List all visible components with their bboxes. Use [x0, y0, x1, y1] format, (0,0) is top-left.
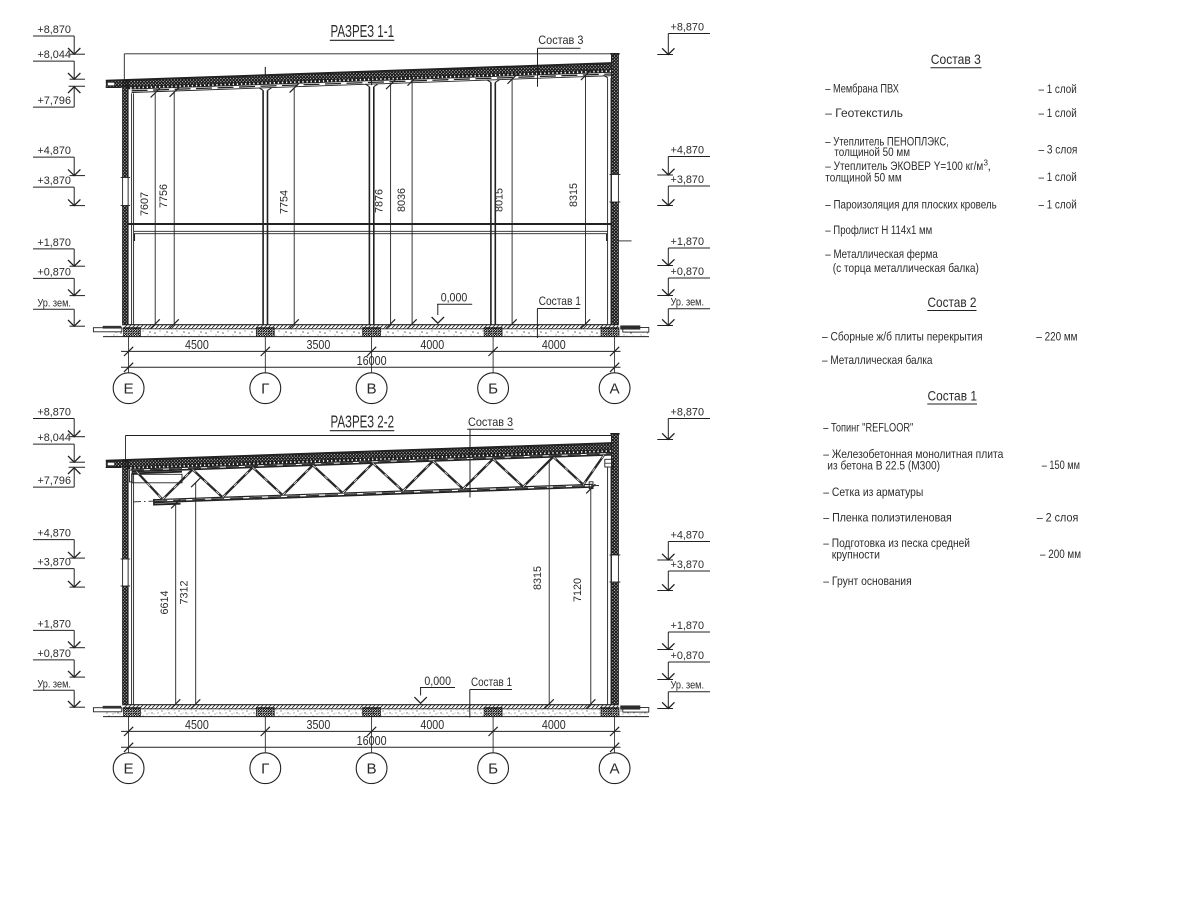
svg-text:7312: 7312 — [179, 581, 191, 605]
svg-text:+4,870: +4,870 — [37, 528, 71, 540]
svg-text:+8,044: +8,044 — [37, 49, 71, 61]
svg-text:Состав 3: Состав 3 — [538, 33, 583, 47]
svg-text:– Сетка из арматуры: – Сетка из арматуры — [823, 485, 923, 499]
svg-text:(с торца металлическая балка): (с торца металлическая балка) — [833, 261, 979, 275]
svg-text:Е: Е — [124, 381, 134, 398]
svg-text:Ур. зем.: Ур. зем. — [37, 678, 71, 690]
svg-text:Состав 1: Состав 1 — [928, 388, 978, 404]
svg-text:– 1 слой: – 1 слой — [1039, 82, 1077, 96]
svg-text:+0,870: +0,870 — [37, 266, 71, 278]
svg-text:Г: Г — [261, 381, 269, 398]
svg-text:А: А — [610, 761, 621, 778]
svg-text:7120: 7120 — [572, 578, 584, 602]
svg-text:Состав 2: Состав 2 — [928, 294, 977, 310]
svg-text:– 220 мм: – 220 мм — [1036, 330, 1077, 344]
svg-text:4500: 4500 — [185, 717, 209, 732]
svg-text:– 1 слой: – 1 слой — [1039, 198, 1077, 212]
svg-text:В: В — [367, 381, 377, 398]
svg-text:+4,870: +4,870 — [671, 145, 705, 157]
svg-text:+3,870: +3,870 — [671, 174, 705, 186]
svg-text:8036: 8036 — [396, 188, 408, 212]
svg-text:4500: 4500 — [185, 337, 209, 352]
svg-text:Г: Г — [261, 761, 269, 778]
svg-text:– 2 слоя: – 2 слоя — [1037, 510, 1079, 524]
svg-text:6614: 6614 — [159, 591, 171, 615]
svg-text:+1,870: +1,870 — [671, 620, 705, 632]
svg-text:4000: 4000 — [542, 337, 566, 352]
svg-text:Состав 1: Состав 1 — [539, 294, 582, 308]
svg-text:+8,870: +8,870 — [671, 407, 705, 419]
svg-text:+8,044: +8,044 — [37, 432, 71, 444]
svg-text:– Пароизоляция для плоских кро: – Пароизоляция для плоских кровель — [825, 198, 996, 212]
svg-text:Состав 3: Состав 3 — [468, 415, 513, 429]
svg-text:3500: 3500 — [307, 337, 331, 352]
svg-text:8015: 8015 — [493, 188, 505, 212]
svg-text:+7,796: +7,796 — [38, 475, 72, 487]
svg-text:7876: 7876 — [373, 189, 385, 213]
svg-text:,: , — [988, 159, 991, 173]
svg-text:РАЗРЕЗ 2-2: РАЗРЕЗ 2-2 — [331, 412, 395, 432]
svg-text:толщиной 50 мм: толщиной 50 мм — [825, 171, 901, 185]
svg-text:4000: 4000 — [542, 717, 566, 732]
svg-text:– Пленка полиэтиленовая: – Пленка полиэтиленовая — [823, 510, 951, 524]
svg-text:– Мембрана ПВХ: – Мембрана ПВХ — [825, 82, 899, 96]
svg-text:– Сборные ж/б плиты перекрытия: – Сборные ж/б плиты перекрытия — [822, 330, 983, 344]
svg-text:+3,870: +3,870 — [671, 559, 705, 571]
svg-text:3500: 3500 — [307, 717, 331, 732]
svg-text:Ур. зем.: Ур. зем. — [37, 297, 71, 309]
svg-text:+1,870: +1,870 — [671, 236, 705, 248]
svg-text:4000: 4000 — [420, 337, 444, 352]
svg-text:А: А — [610, 381, 621, 398]
svg-text:– 200 мм: – 200 мм — [1040, 547, 1081, 561]
svg-text:– Профлист Н 114х1 мм: – Профлист Н 114х1 мм — [825, 223, 932, 237]
svg-text:8315: 8315 — [568, 183, 580, 207]
svg-text:0,000: 0,000 — [424, 674, 451, 688]
svg-text:+8,870: +8,870 — [37, 407, 71, 419]
svg-text:– Топинг "REFLOOR": – Топинг "REFLOOR" — [823, 421, 913, 435]
svg-text:– Грунт основания: – Грунт основания — [823, 574, 911, 588]
svg-text:7607: 7607 — [139, 192, 151, 216]
svg-text:0,000: 0,000 — [441, 291, 468, 305]
svg-text:крупности: крупности — [832, 547, 880, 561]
svg-text:Ур. зем.: Ур. зем. — [671, 297, 705, 309]
svg-text:Состав 3: Состав 3 — [931, 51, 981, 67]
svg-text:РАЗРЕЗ 1-1: РАЗРЕЗ 1-1 — [331, 21, 395, 41]
svg-text:+0,870: +0,870 — [671, 650, 705, 662]
svg-text:+3,870: +3,870 — [37, 557, 71, 569]
svg-text:+1,870: +1,870 — [37, 237, 71, 249]
svg-text:В: В — [367, 761, 377, 778]
svg-text:+8,870: +8,870 — [37, 24, 71, 36]
svg-text:+1,870: +1,870 — [37, 618, 71, 630]
svg-text:– Металлическая ферма: – Металлическая ферма — [825, 247, 938, 261]
svg-text:– 1 слой: – 1 слой — [1039, 106, 1077, 120]
svg-text:Е: Е — [124, 761, 134, 778]
svg-text:– 1 слой: – 1 слой — [1039, 170, 1077, 184]
svg-text:+3,870: +3,870 — [37, 175, 71, 187]
svg-text:– 150 мм: – 150 мм — [1042, 458, 1080, 472]
svg-text:– 3 слоя: – 3 слоя — [1039, 143, 1078, 157]
svg-text:– Геотекстиль: – Геотекстиль — [825, 106, 903, 120]
svg-text:Состав 1: Состав 1 — [471, 675, 512, 689]
svg-text:– Металлическая балка: – Металлическая балка — [822, 353, 933, 367]
svg-text:+4,870: +4,870 — [671, 530, 705, 542]
svg-text:+0,870: +0,870 — [37, 648, 71, 660]
svg-text:Б: Б — [488, 761, 498, 778]
svg-text:8315: 8315 — [532, 566, 544, 590]
svg-text:Б: Б — [488, 381, 498, 398]
svg-text:из бетона В 22.5 (М300): из бетона В 22.5 (М300) — [827, 458, 940, 472]
svg-text:+8,870: +8,870 — [671, 22, 705, 34]
svg-text:Ур. зем.: Ур. зем. — [671, 680, 705, 692]
svg-text:+7,796: +7,796 — [38, 95, 72, 107]
svg-text:4000: 4000 — [420, 717, 444, 732]
svg-text:толщиной 50 мм: толщиной 50 мм — [834, 145, 910, 159]
svg-text:7754: 7754 — [278, 190, 290, 214]
svg-text:7756: 7756 — [158, 184, 170, 208]
svg-text:+4,870: +4,870 — [37, 145, 71, 157]
svg-text:+0,870: +0,870 — [671, 266, 705, 278]
